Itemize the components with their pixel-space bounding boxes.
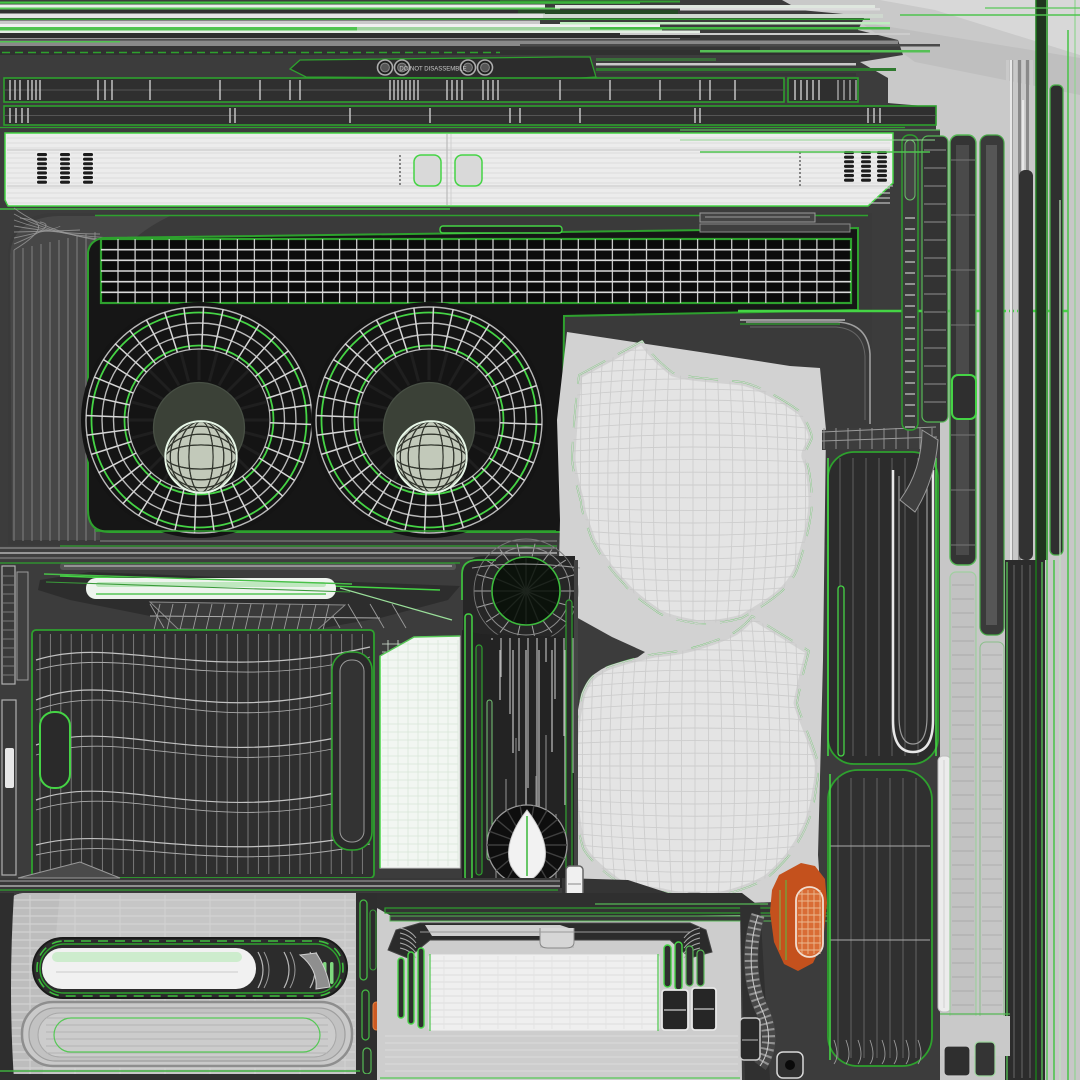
- svg-text:DO NOT DISASSEMBLE: DO NOT DISASSEMBLE: [399, 67, 466, 73]
